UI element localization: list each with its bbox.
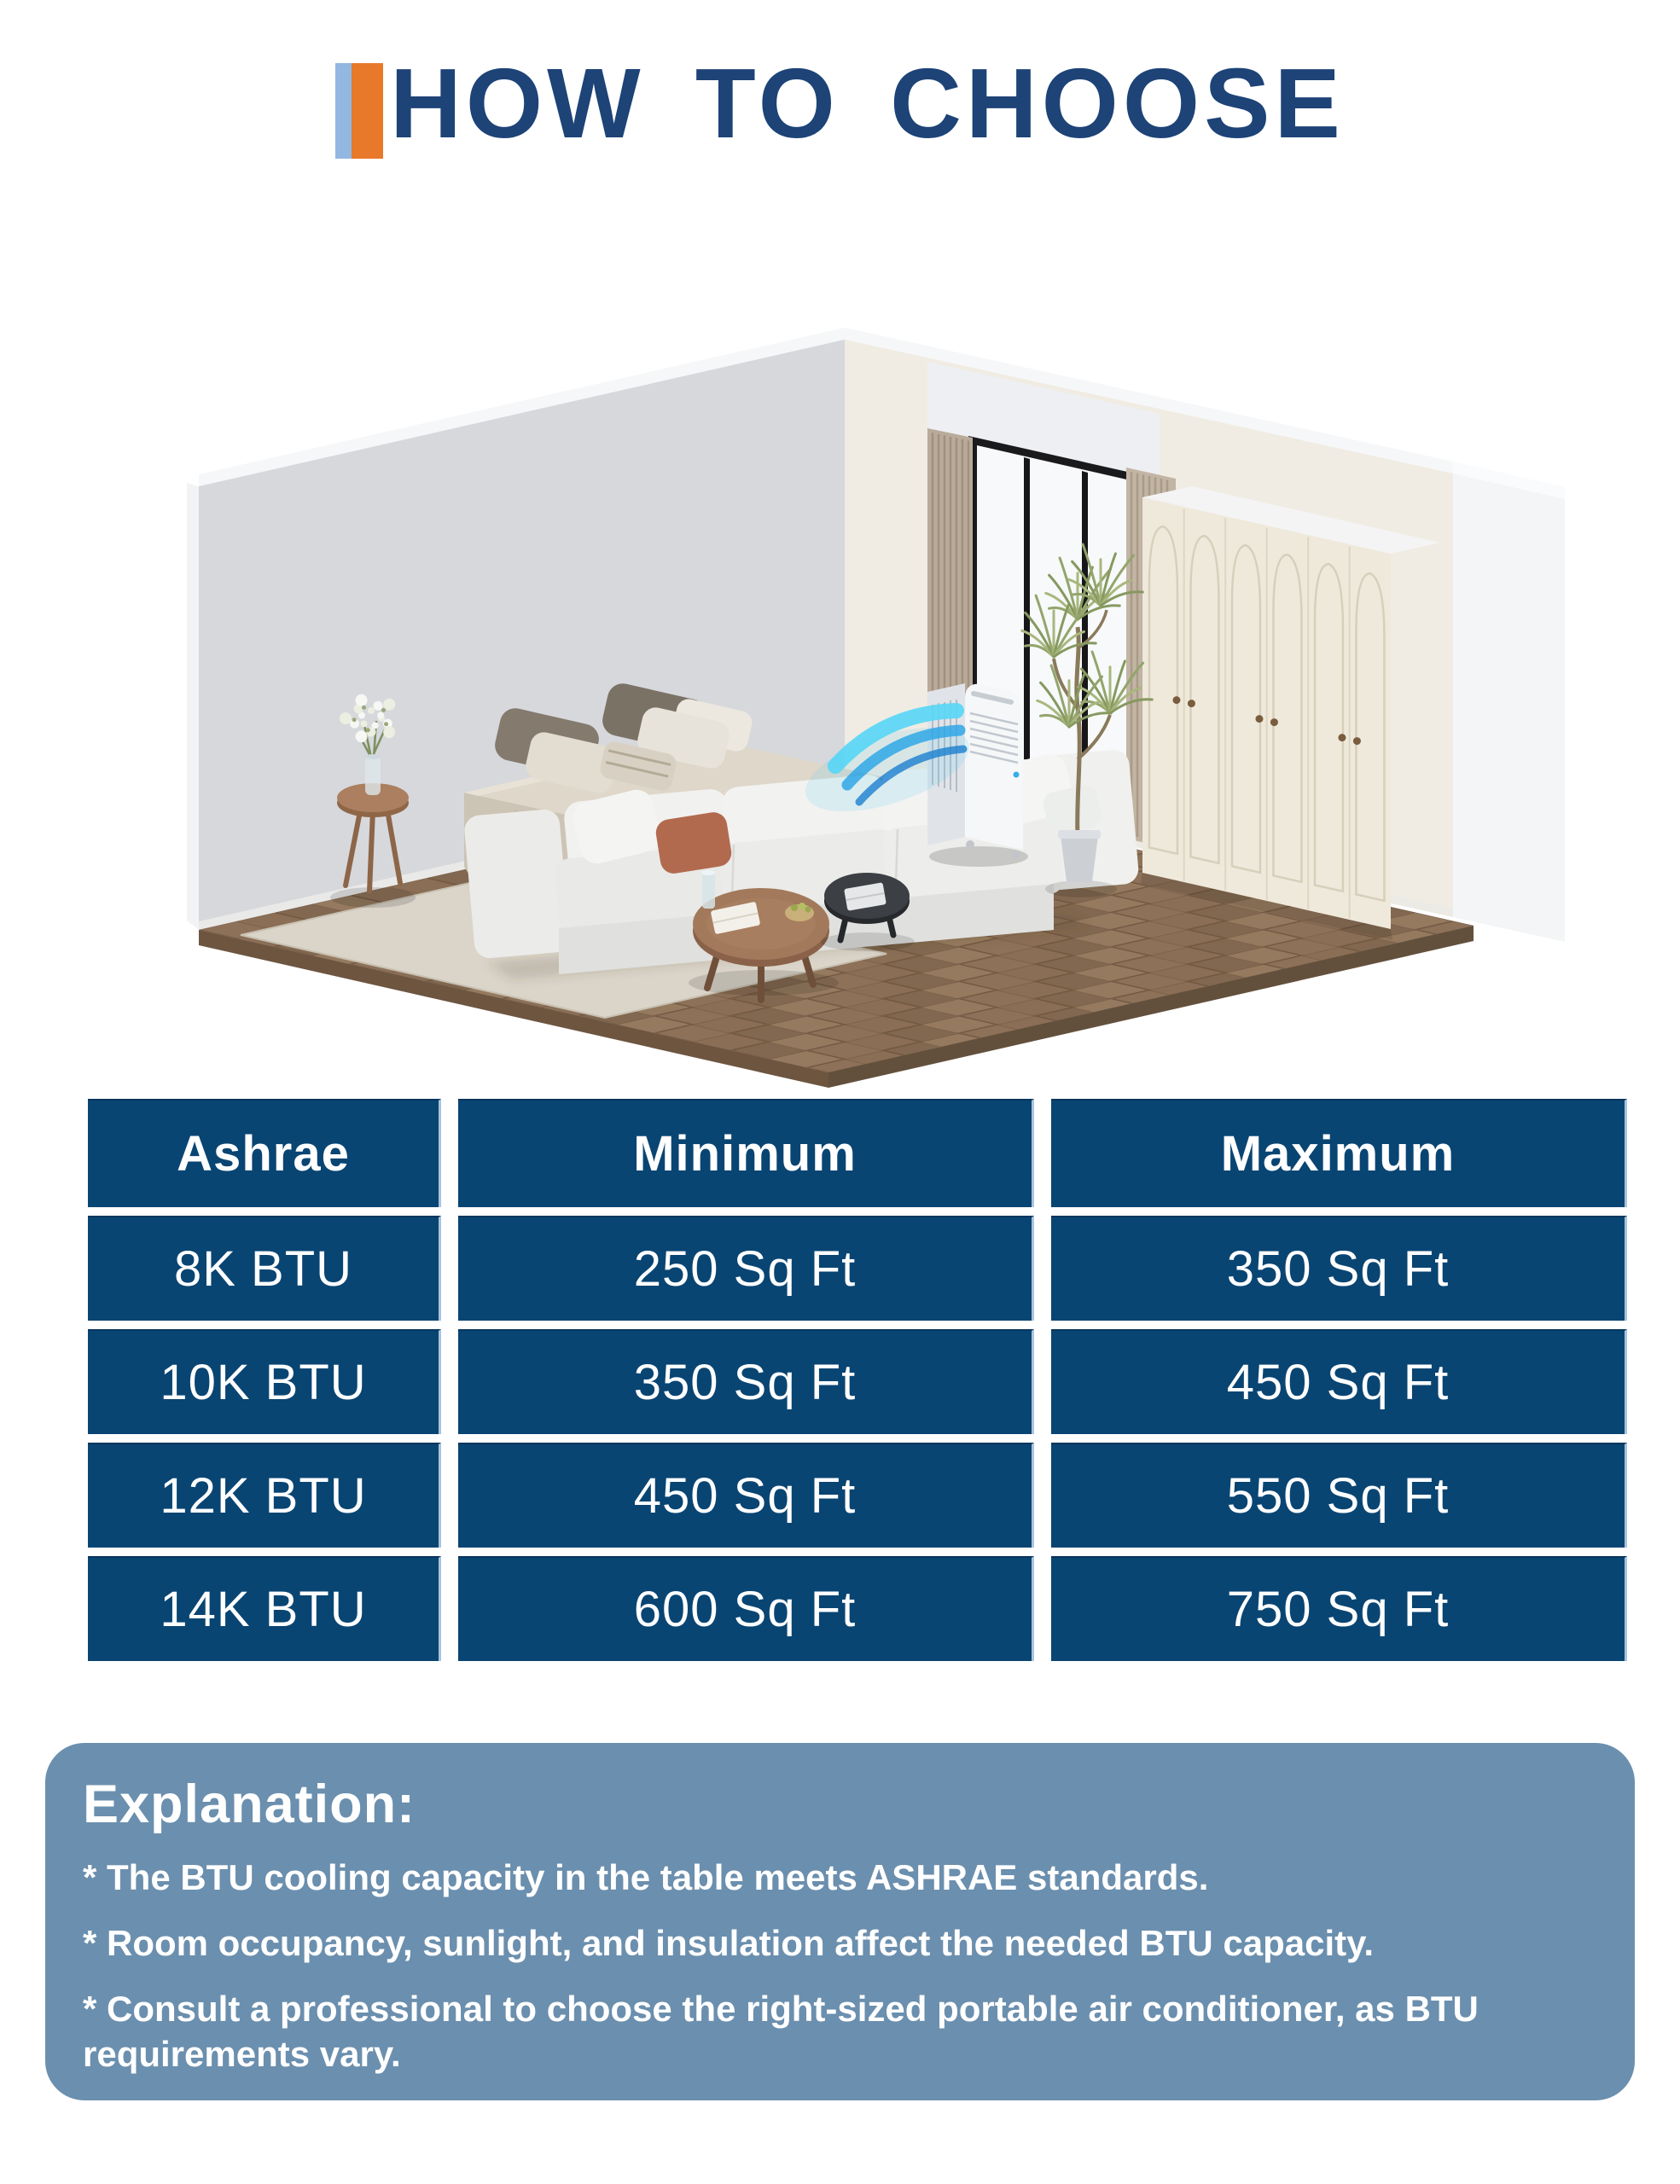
explanation-bullet: * Room occupancy, sunlight, and insulati… xyxy=(83,1921,1584,1966)
table-cell: 14K BTU xyxy=(88,1556,441,1661)
table-cell: 250 Sq Ft xyxy=(458,1216,1034,1321)
title-accent-bar-icon xyxy=(335,63,383,159)
table-cell: 750 Sq Ft xyxy=(1051,1556,1627,1661)
table-cell: 450 Sq Ft xyxy=(458,1443,1034,1548)
table-cell: 450 Sq Ft xyxy=(1051,1329,1627,1434)
btu-sizing-table: Ashrae Minimum Maximum 8K BTU 250 Sq Ft … xyxy=(88,1099,1627,1661)
table-header-ashrae: Ashrae xyxy=(88,1099,441,1207)
explanation-heading: Explanation: xyxy=(83,1774,1584,1835)
table-cell: 12K BTU xyxy=(88,1443,441,1548)
table-cell: 10K BTU xyxy=(88,1329,441,1434)
explanation-bullet: * The BTU cooling capacity in the table … xyxy=(83,1856,1584,1901)
room-illustration xyxy=(115,247,1566,1101)
table-cell: 600 Sq Ft xyxy=(458,1556,1034,1661)
accent-orange-stripe xyxy=(352,63,383,159)
page-header: HOW TO CHOOSE xyxy=(0,49,1680,159)
table-cell: 550 Sq Ft xyxy=(1051,1443,1627,1548)
table-cell: 350 Sq Ft xyxy=(458,1329,1034,1434)
table-header-maximum: Maximum xyxy=(1051,1099,1627,1207)
table-cell: 8K BTU xyxy=(88,1216,441,1321)
infographic-page: HOW TO CHOOSE xyxy=(0,0,1680,2184)
page-title: HOW TO CHOOSE xyxy=(390,49,1345,159)
table-cell: 350 Sq Ft xyxy=(1051,1216,1627,1321)
explanation-bullet: * Consult a professional to choose the r… xyxy=(83,1987,1584,2077)
table-header-minimum: Minimum xyxy=(458,1099,1034,1207)
explanation-panel: Explanation: * The BTU cooling capacity … xyxy=(45,1743,1635,2100)
accent-blue-stripe xyxy=(335,63,352,159)
black-side-table xyxy=(821,873,915,951)
